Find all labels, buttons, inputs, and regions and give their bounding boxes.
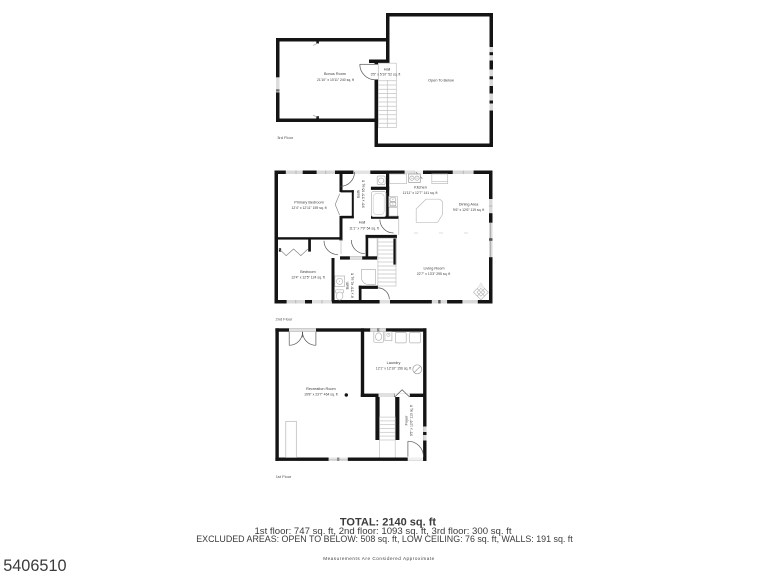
svg-text:Laundry: Laundry bbox=[387, 361, 401, 365]
svg-text:3'5" x 5'10" 52 sq. ft: 3'5" x 5'10" 52 sq. ft bbox=[371, 73, 401, 77]
svg-text:9'6" x 5'5" 65 sq. ft: 9'6" x 5'5" 65 sq. ft bbox=[361, 180, 365, 208]
svg-text:Hall: Hall bbox=[359, 220, 366, 224]
svg-text:Bath: Bath bbox=[345, 282, 349, 290]
svg-text:12'1" x 12'10" 156 sq. ft: 12'1" x 12'10" 156 sq. ft bbox=[376, 367, 411, 371]
svg-text:Bedroom: Bedroom bbox=[300, 270, 315, 274]
svg-text:5406510: 5406510 bbox=[3, 557, 66, 575]
svg-text:22'7" x 13'3" 295 sq. ft: 22'7" x 13'3" 295 sq. ft bbox=[417, 272, 451, 276]
svg-text:9'5" x 12'6" 113 sq. ft: 9'5" x 12'6" 113 sq. ft bbox=[409, 405, 413, 436]
svg-text:Foyer: Foyer bbox=[404, 415, 408, 425]
svg-text:21'10" x 10'11" 240 sq. ft: 21'10" x 10'11" 240 sq. ft bbox=[317, 78, 354, 82]
svg-text:11'11" x 12'7" 141 sq. ft: 11'11" x 12'7" 141 sq. ft bbox=[403, 191, 438, 195]
svg-text:Measurements Are Considered Ap: Measurements Are Considered Approximate bbox=[323, 556, 435, 561]
svg-text:EXCLUDED AREAS: OPEN TO BELOW:: EXCLUDED AREAS: OPEN TO BELOW: 508 sq. f… bbox=[196, 534, 573, 544]
svg-text:12'4" x 12'5" 124 sq. ft: 12'4" x 12'5" 124 sq. ft bbox=[291, 275, 325, 279]
svg-text:Open To Below: Open To Below bbox=[428, 79, 454, 83]
svg-text:Hall: Hall bbox=[384, 67, 391, 71]
svg-text:Primary Bedroom: Primary Bedroom bbox=[294, 201, 324, 205]
svg-text:Kitchen: Kitchen bbox=[414, 185, 427, 189]
svg-text:3rd Floor: 3rd Floor bbox=[277, 135, 294, 140]
svg-text:Bonus Room: Bonus Room bbox=[324, 72, 346, 76]
svg-text:Living Room: Living Room bbox=[423, 266, 444, 270]
svg-text:2nd Floor: 2nd Floor bbox=[276, 317, 294, 322]
svg-text:9'6" x 12'6" 119 sq. ft: 9'6" x 12'6" 119 sq. ft bbox=[453, 208, 484, 212]
svg-text:Dining Area: Dining Area bbox=[459, 202, 480, 206]
svg-text:Recreation Room: Recreation Room bbox=[306, 387, 336, 391]
svg-text:19'8" x 23'7" 464 sq. ft: 19'8" x 23'7" 464 sq. ft bbox=[304, 393, 338, 397]
svg-text:11'1" x 7'9" 54 sq. ft: 11'1" x 7'9" 54 sq. ft bbox=[349, 226, 379, 230]
svg-text:1st Floor: 1st Floor bbox=[276, 474, 292, 479]
svg-text:Bath: Bath bbox=[356, 190, 360, 198]
svg-text:12'4" x 12'11" 159 sq. ft: 12'4" x 12'11" 159 sq. ft bbox=[291, 206, 326, 210]
svg-text:8' x 5'6" 41 sq. ft: 8' x 5'6" 41 sq. ft bbox=[350, 273, 354, 298]
